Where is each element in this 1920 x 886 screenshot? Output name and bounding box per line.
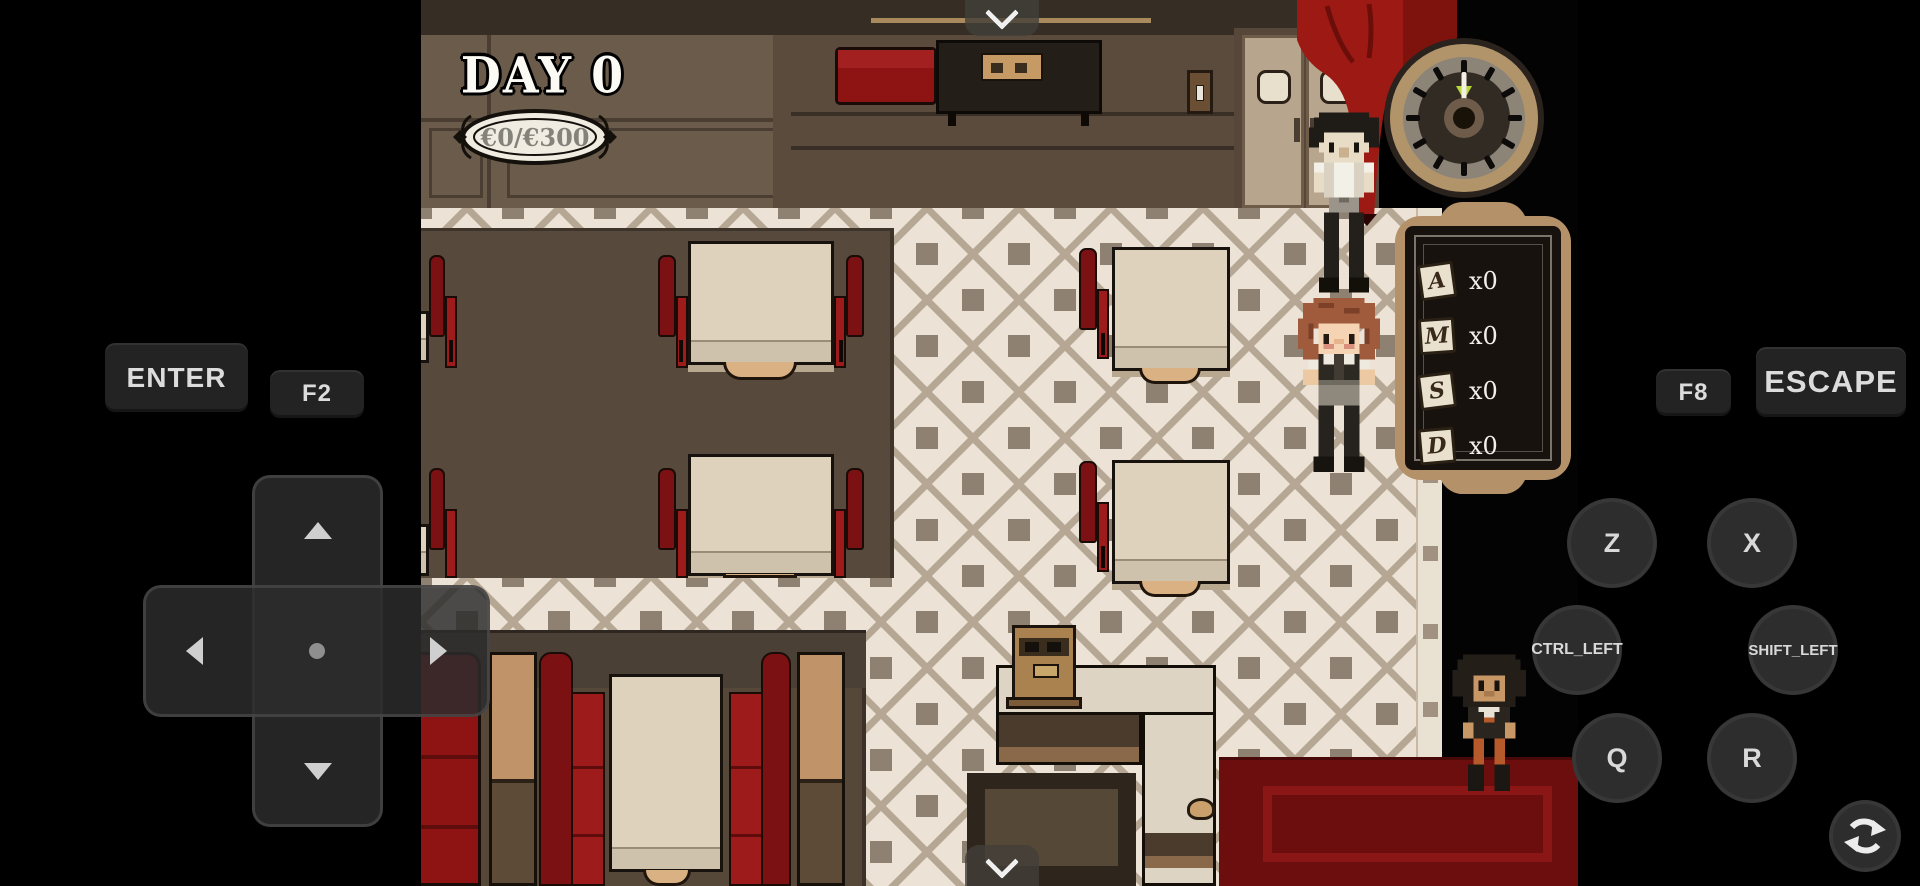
z-button[interactable]: Z [1567,498,1657,588]
table-leg [1081,114,1089,126]
chair-back [1079,461,1097,543]
clock [1382,36,1546,200]
booth-bench [797,652,845,886]
dpad-up-icon[interactable] [304,522,332,539]
chair-seat [834,509,846,578]
chair-seat [676,509,688,578]
dining-table [1112,460,1230,584]
q-button[interactable]: Q [1572,713,1662,803]
round-chair [1139,368,1201,384]
chair-back [1079,248,1097,330]
round-chair [1139,581,1201,597]
ticket-count: x0 [1469,377,1498,405]
f2-key[interactable]: F2 [270,370,364,418]
ticket-count: x0 [1469,432,1498,460]
ticket-count: x0 [1469,267,1498,295]
dining-table [421,311,429,363]
bottom-panel-handle[interactable] [965,845,1039,886]
chair-leg [449,340,453,362]
chair-seat [445,509,457,578]
x-button[interactable]: X [1707,498,1797,588]
character-customer [1447,644,1531,822]
dpad-down-icon[interactable] [304,763,332,780]
top-panel-handle[interactable] [965,0,1039,36]
cash-register [1012,625,1076,705]
money-value: €0/€300 [447,123,623,152]
booth-table [609,674,723,872]
refresh-arrows-icon [1829,800,1901,872]
dpad-left-icon[interactable] [186,637,203,665]
character-waiter [1299,112,1389,298]
ticket-icon: M [1418,316,1456,354]
bar-table [936,40,1102,114]
shift-left-button[interactable]: SHIFT_LEFT [1748,605,1838,695]
f8-key[interactable]: F8 [1656,369,1731,416]
enter-key[interactable]: ENTER [105,343,248,412]
chevron-down-icon [985,845,1019,879]
ticket-letter: M [1424,322,1450,350]
character-redhead [1287,298,1391,482]
chair-back [658,468,676,550]
dining-table [688,241,834,365]
menu-row: D x0 [1419,409,1559,482]
ticket-letter: A [1427,266,1448,294]
booth-seat [571,692,605,886]
booth-bench [489,652,537,886]
register-base [1006,697,1082,709]
day-label: DAY 0 [443,46,643,104]
chair-back [658,255,676,337]
round-chair [723,362,797,380]
dining-table [688,454,834,576]
chair-leg [1101,333,1105,355]
ctrl-left-button[interactable]: CTRL_LEFT [1532,605,1622,695]
dining-table [421,524,429,576]
chair-leg [839,340,843,362]
booth-seatback [761,652,791,886]
round-chair [723,574,797,578]
chair-leg [1101,546,1105,568]
booth-seat [729,692,763,886]
bar-booth-seat [835,47,937,105]
dpad-right-icon[interactable] [430,637,447,665]
chair-back [429,468,445,550]
table-leg [948,114,956,126]
chair-back [429,255,445,337]
rotate-screen-button[interactable] [1829,800,1901,872]
chair-back [846,468,864,550]
dining-table [1112,247,1230,371]
ticket-letter: S [1428,377,1447,405]
ticket-icon: D [1417,426,1456,465]
chair-back [846,255,864,337]
host-counter-front [996,712,1142,765]
ticket-icon: A [1417,260,1458,301]
bread-item [1187,798,1215,820]
money-badge: €0/€300 [447,102,623,172]
ticket-count: x0 [1469,322,1498,350]
escape-key[interactable]: ESCAPE [1756,347,1906,417]
light-switch [1187,70,1213,114]
serving-tray [981,53,1043,81]
door-window [1257,70,1291,104]
ticket-icon: S [1417,370,1457,410]
booth-seatback [539,652,573,886]
r-button[interactable]: R [1707,713,1797,803]
game-viewport: DAY 0 €0/€300 [421,0,1578,886]
chevron-down-icon [985,0,1019,30]
dpad-center-dot [309,643,325,659]
ticket-letter: D [1426,432,1447,460]
menu-board-face: A x0 M x0 S x0 D x0 [1405,226,1561,470]
chair-leg [679,340,683,362]
